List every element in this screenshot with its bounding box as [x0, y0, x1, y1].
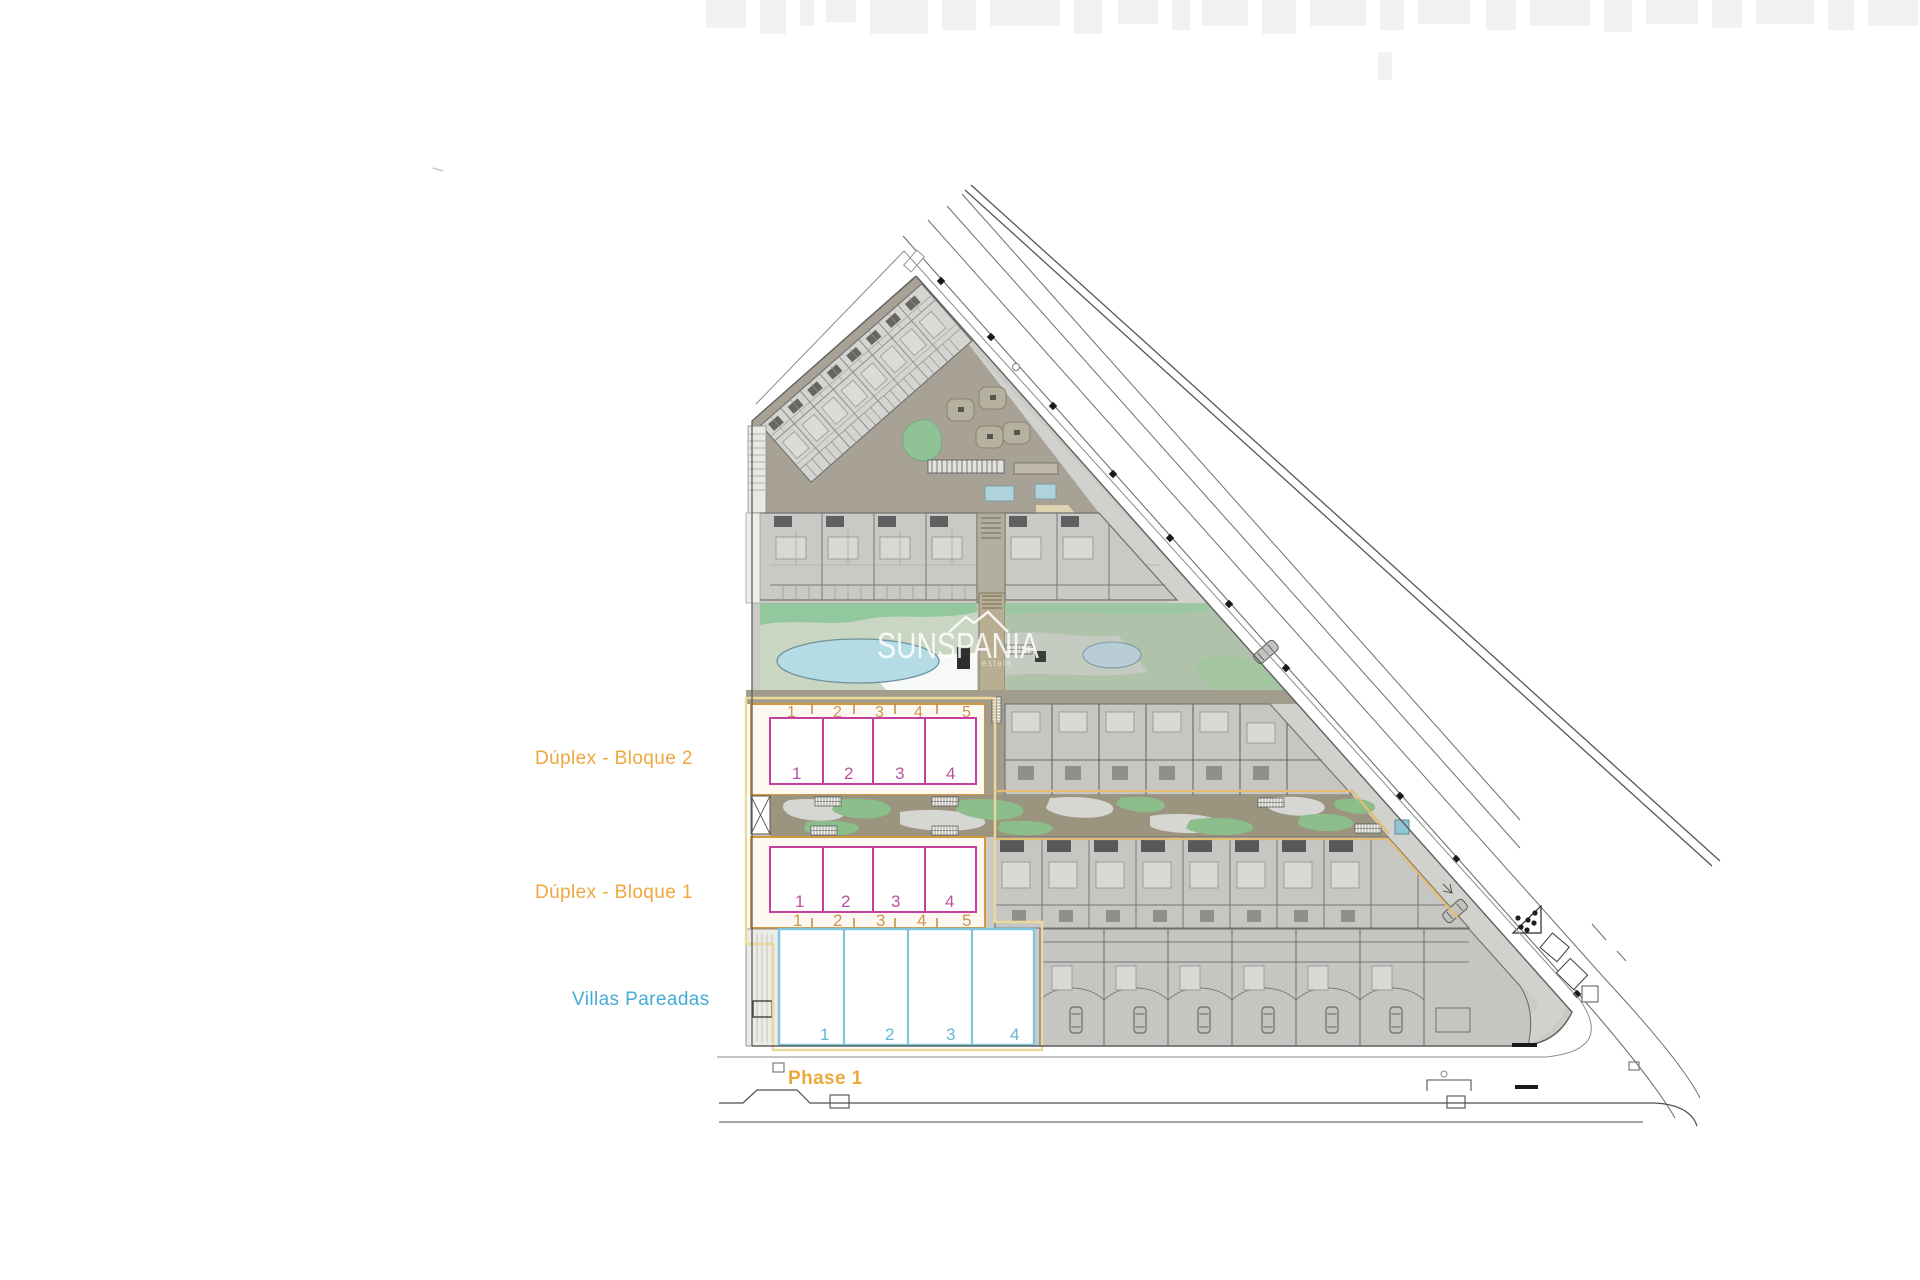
svg-text:5: 5 [962, 704, 971, 721]
svg-text:3: 3 [946, 1025, 955, 1044]
svg-text:2: 2 [841, 892, 850, 911]
svg-text:4: 4 [946, 764, 955, 783]
svg-text:2: 2 [833, 911, 842, 930]
svg-text:Phase 1: Phase 1 [788, 1068, 863, 1089]
svg-text:estate: estate [982, 658, 1013, 668]
svg-text:Dúplex - Bloque 1: Dúplex - Bloque 1 [535, 882, 693, 903]
svg-text:1: 1 [793, 911, 802, 930]
svg-text:1: 1 [792, 764, 801, 783]
svg-text:1: 1 [820, 1025, 829, 1044]
svg-text:3: 3 [891, 892, 900, 911]
svg-text:1: 1 [795, 892, 804, 911]
svg-text:5: 5 [962, 911, 971, 930]
svg-text:2: 2 [885, 1025, 894, 1044]
svg-text:3: 3 [876, 911, 885, 930]
svg-text:4: 4 [917, 911, 926, 930]
svg-text:SUNSPANIA: SUNSPANIA [877, 625, 1039, 666]
svg-text:2: 2 [833, 704, 842, 721]
svg-text:2: 2 [844, 764, 853, 783]
svg-text:1: 1 [787, 704, 796, 721]
svg-text:Villas Pareadas: Villas Pareadas [572, 989, 710, 1010]
svg-text:3: 3 [895, 764, 904, 783]
svg-text:4: 4 [1010, 1025, 1019, 1044]
svg-text:Dúplex - Bloque 2: Dúplex - Bloque 2 [535, 748, 693, 769]
svg-text:4: 4 [945, 892, 954, 911]
svg-text:4: 4 [914, 704, 923, 721]
svg-text:3: 3 [875, 704, 884, 721]
